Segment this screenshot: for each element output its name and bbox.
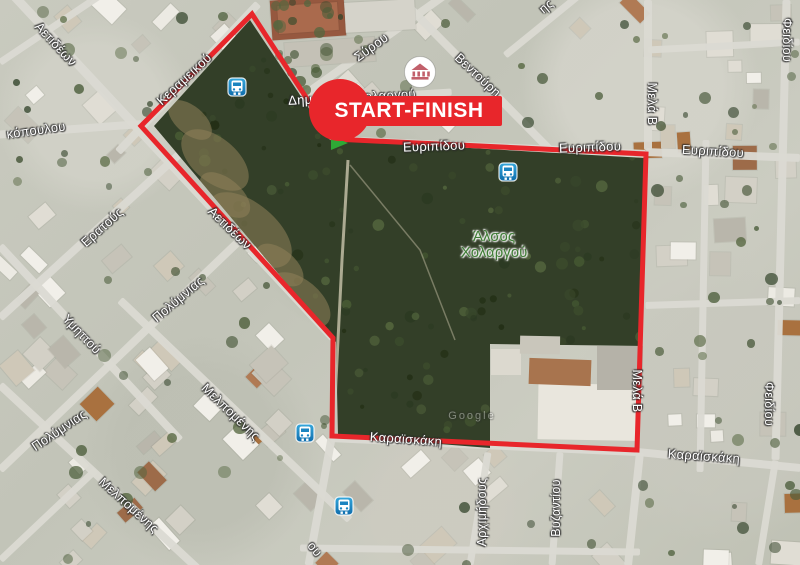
street-label: Ευριπίδου xyxy=(559,138,622,155)
street-label: Ευριπίδου xyxy=(403,137,466,154)
street-label: Καραϊσκάκη xyxy=(369,429,442,449)
street-label: ου xyxy=(304,538,325,559)
street-label: Ερατούς xyxy=(78,204,126,249)
street-label: Μελπομένης xyxy=(96,474,162,536)
street-label: Αετιδέων xyxy=(32,19,80,69)
street-label: Υμηττού xyxy=(60,311,105,357)
street-label: Μελά Β xyxy=(645,83,659,126)
street-label: Αρχιμήδους xyxy=(475,478,489,547)
street-label: ης xyxy=(536,0,556,16)
street-label: κόπουλου xyxy=(5,118,66,141)
street-label: Πολύμνιας xyxy=(149,273,207,325)
imagery-watermark: Google xyxy=(448,410,495,422)
street-label: Φειδίου xyxy=(762,382,776,426)
street-label: Βυζαντίου xyxy=(549,479,563,537)
street-label: Καραϊσκάκη xyxy=(667,446,740,466)
street-label: Αετιδέων xyxy=(205,204,255,253)
street-label: Μελπομένης xyxy=(199,380,264,443)
street-label: Σύρου xyxy=(351,30,391,65)
street-label: Ευριπίδου xyxy=(682,142,745,160)
street-label: Μελά Β xyxy=(630,370,644,413)
labels-layer: ΑετιδέωνκόπουλουΚεραμεικούΣύρουΒεντούρηΔ… xyxy=(0,0,800,565)
street-label: Κεραμεικού xyxy=(154,50,215,108)
start-finish-badge-label: START-FINISH xyxy=(334,99,483,123)
street-label: Πολύμνιας xyxy=(29,406,90,454)
satellite-map: ΑετιδέωνκόπουλουΚεραμεικούΣύρουΒεντούρηΔ… xyxy=(0,0,800,565)
park-name-label: ΆλσοςΧολαργού xyxy=(461,229,528,261)
street-label: Βεντούρη xyxy=(452,50,504,100)
street-label: Φειδίου xyxy=(780,18,794,62)
